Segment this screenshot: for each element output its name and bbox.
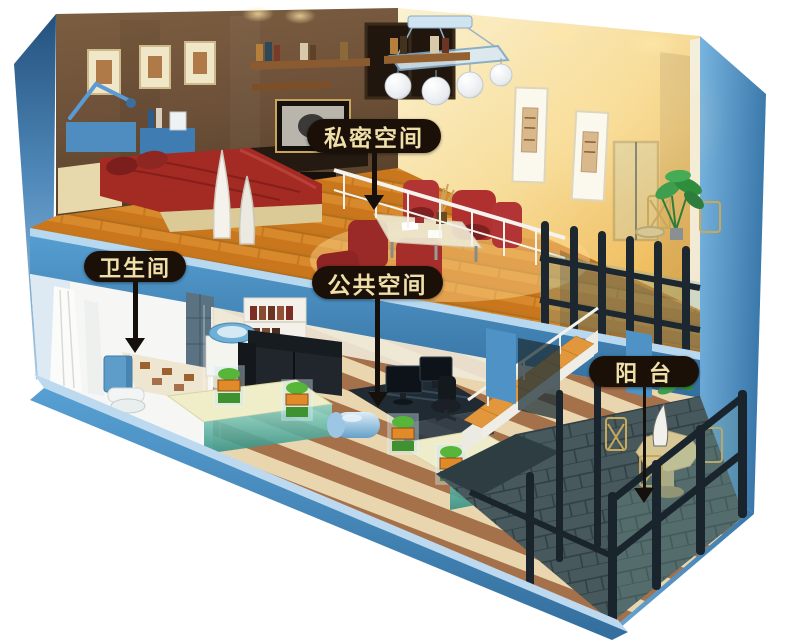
down-arrow-icon (368, 392, 388, 407)
down-arrow-icon (125, 338, 145, 353)
private-space-pill: 私密空间 (307, 119, 441, 153)
label-balcony: 阳 台 (589, 356, 699, 503)
public-space-arrow-stem (375, 299, 380, 392)
stair-wall (486, 328, 516, 404)
down-arrow-icon (634, 488, 654, 503)
label-public-space: 公共空间 (312, 266, 443, 407)
under-stair-doorway (518, 338, 560, 420)
label-bathroom: 卫生间 (84, 251, 186, 353)
down-arrow-icon (364, 195, 384, 210)
label-private-space: 私密空间 (307, 119, 441, 210)
apartment-cutaway-figure: 私密空间 卫生间 公共空间 阳 台 (0, 0, 800, 640)
private-space-arrow-stem (372, 153, 377, 195)
bathroom-pill: 卫生间 (84, 251, 186, 282)
balcony-pill: 阳 台 (589, 356, 699, 387)
public-space-pill: 公共空间 (312, 266, 443, 299)
blue-cylinder (327, 412, 380, 438)
balcony-arrow-stem (643, 387, 646, 488)
bathroom-arrow-stem (133, 282, 138, 338)
